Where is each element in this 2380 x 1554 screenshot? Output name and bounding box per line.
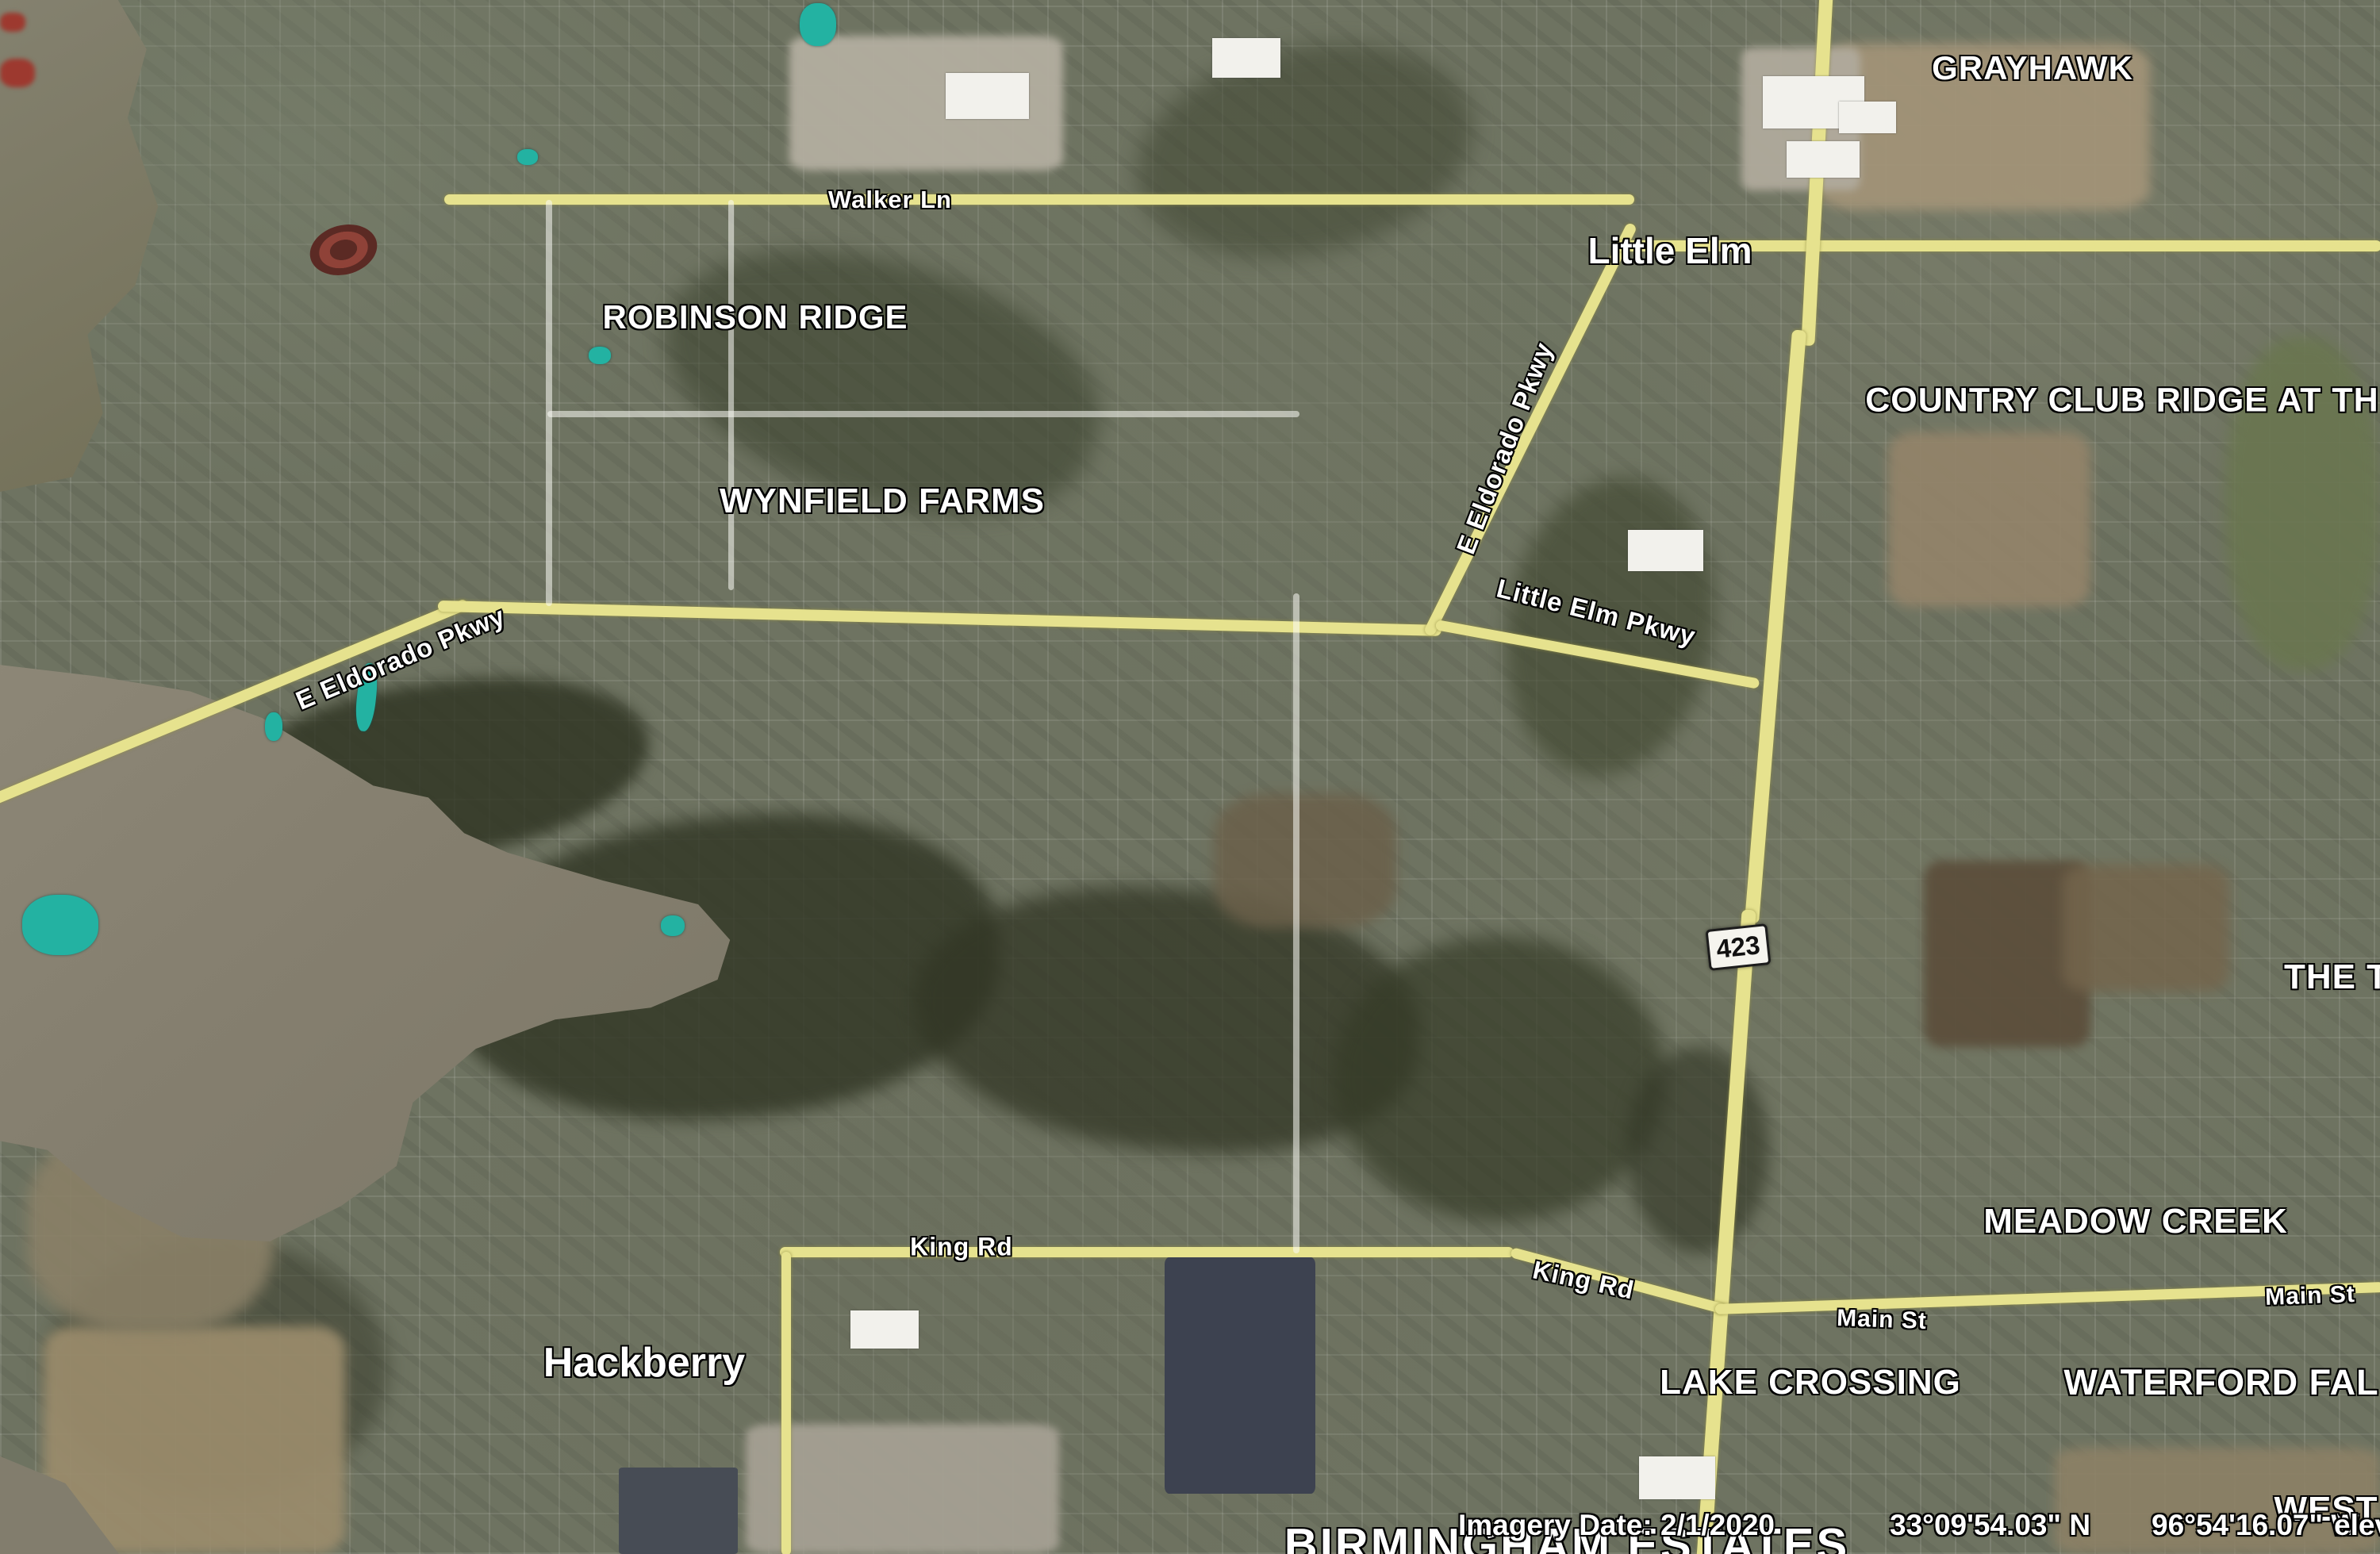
latitude-text: 33°09'54.03" N xyxy=(1890,1509,2090,1542)
imagery-date-text: Imagery Date: 2/1/2020 xyxy=(1458,1509,1775,1542)
elevation-text: elev xyxy=(2334,1509,2380,1542)
status-bar: Imagery Date: 2/1/2020 33°09'54.03" N 96… xyxy=(0,0,2380,1554)
longitude-text: 96°54'16.07" W xyxy=(2152,1509,2359,1542)
satellite-map-canvas[interactable]: 423 GRAYHAWKROBINSON RIDGECOUNTRY CLUB R… xyxy=(0,0,2380,1554)
